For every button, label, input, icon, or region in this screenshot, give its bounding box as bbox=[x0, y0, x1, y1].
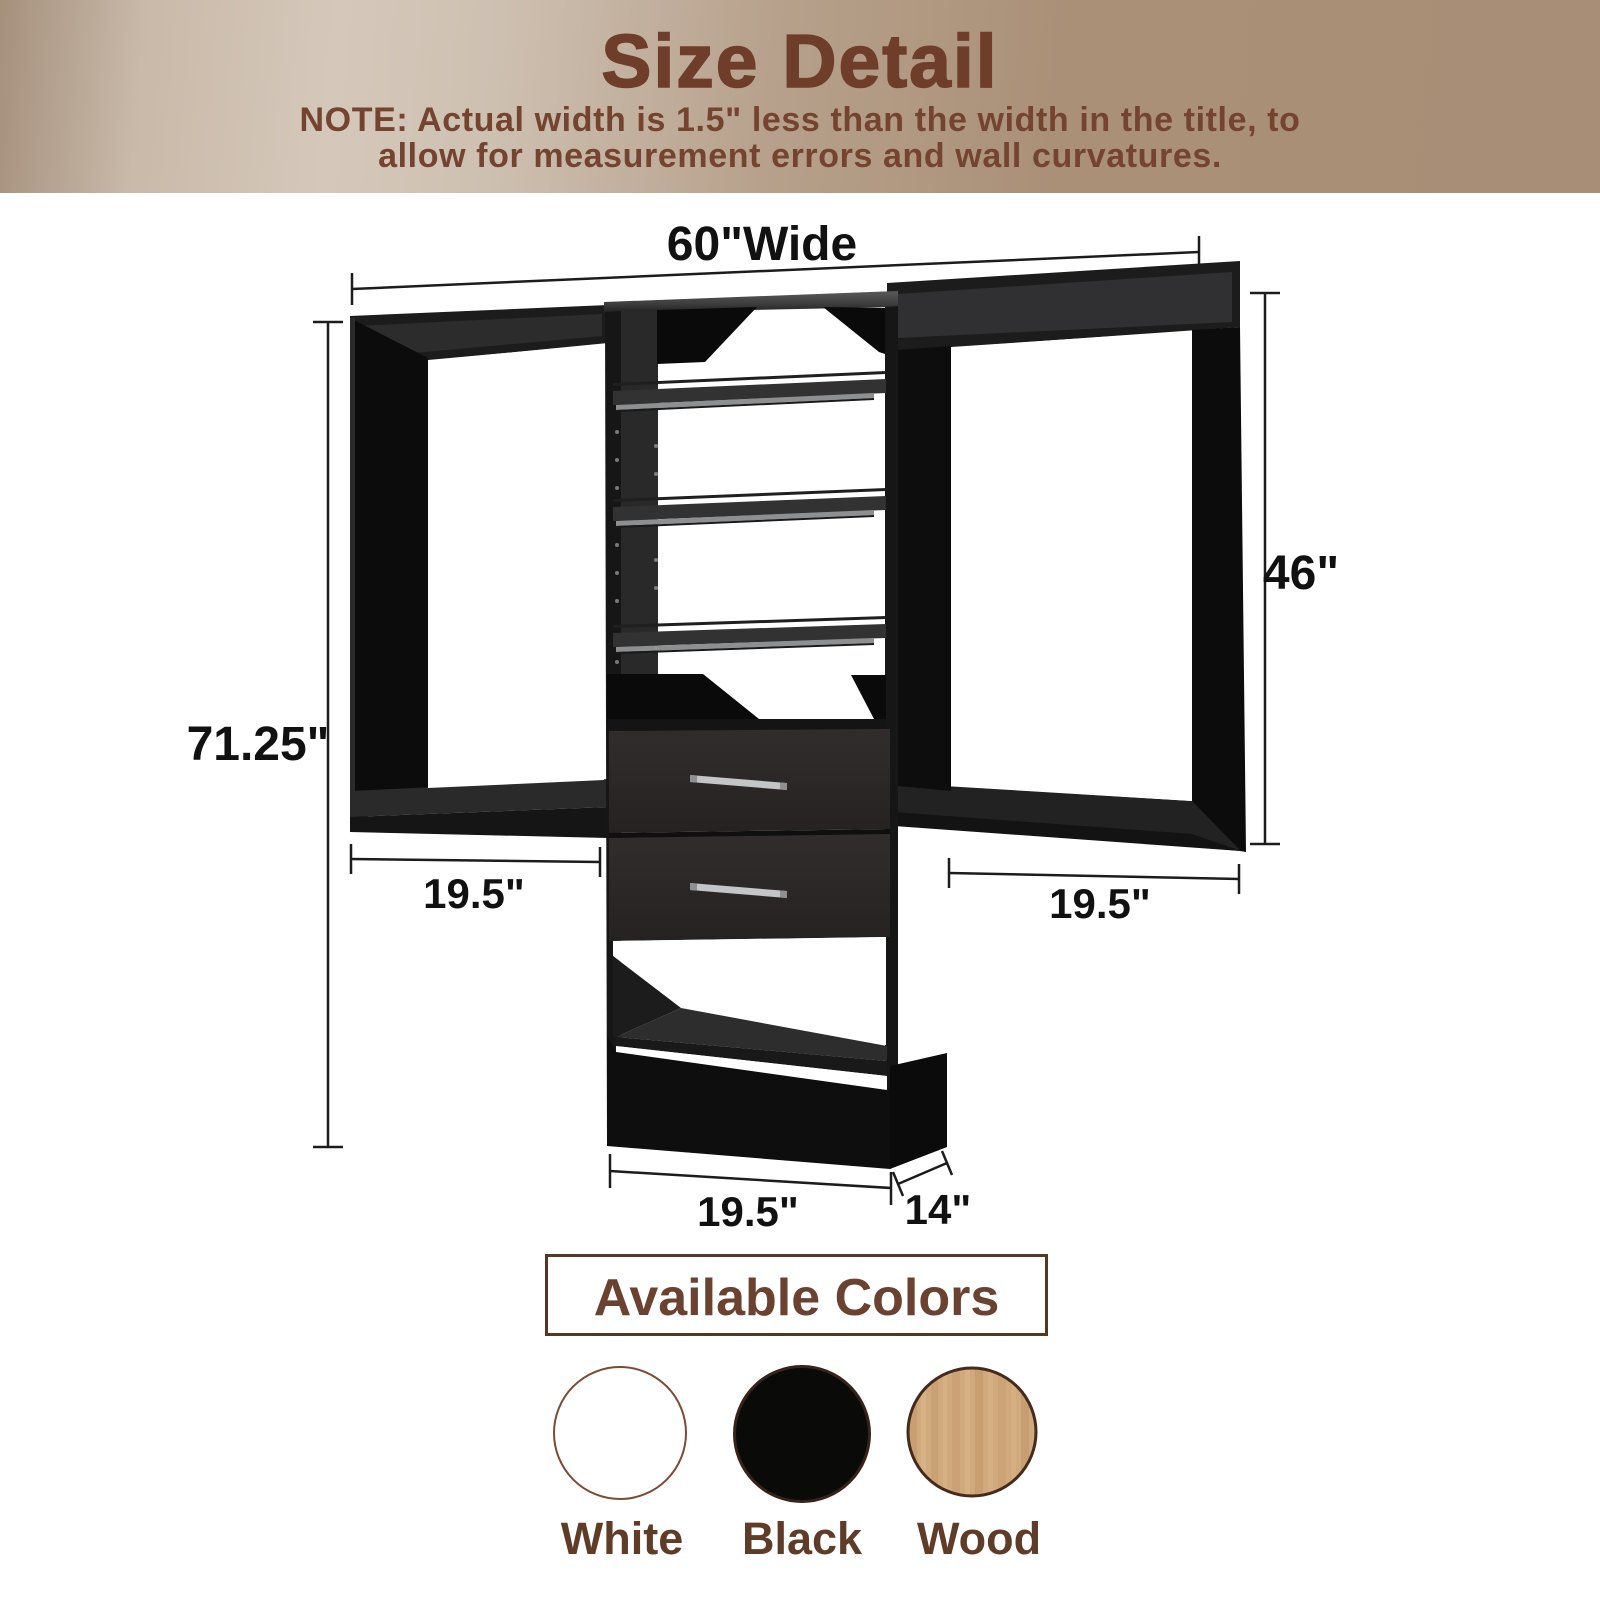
svg-text:71.25": 71.25" bbox=[187, 718, 330, 771]
svg-text:19.5": 19.5" bbox=[423, 870, 525, 917]
svg-text:14": 14" bbox=[905, 1186, 972, 1233]
svg-text:19.5": 19.5" bbox=[697, 1188, 799, 1235]
svg-text:19.5": 19.5" bbox=[1049, 880, 1151, 927]
svg-text:46": 46" bbox=[1263, 547, 1339, 600]
svg-text:60"Wide: 60"Wide bbox=[667, 218, 857, 271]
